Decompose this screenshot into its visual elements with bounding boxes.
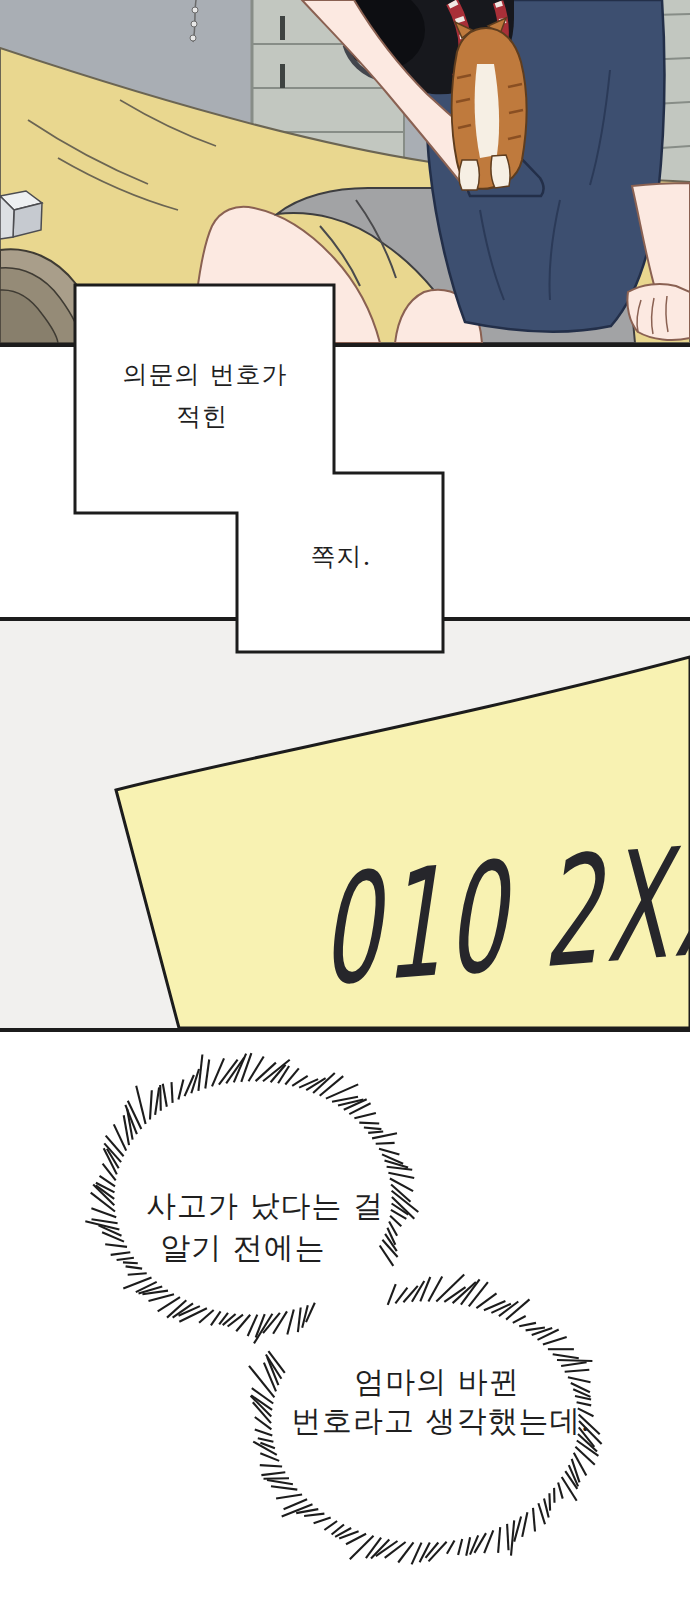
white-box [0, 191, 42, 239]
narration-line-1: 의문의 번호가 [123, 358, 288, 391]
phone-number-handwriting: 010 2XX [318, 822, 690, 1007]
thought-line-4: 번호라고 생각했는데. [291, 1401, 591, 1442]
thought-bubble-outline [85, 1053, 601, 1564]
webtoon-page: 010 2XX 의문의 번호가 적힌 쪽지. 사고가 났다는 걸 알기 전에는 … [0, 0, 690, 1600]
narration-line-2: 적힌 [176, 400, 228, 433]
illustration-panel [0, 0, 690, 343]
bedroom-illustration [0, 0, 690, 343]
thought-line-2: 알기 전에는 [160, 1228, 326, 1269]
panel-border-bottom [0, 1028, 690, 1032]
thought-line-3: 엄마의 바뀐 [354, 1362, 520, 1403]
thought-line-1: 사고가 났다는 걸 [146, 1186, 384, 1227]
panel-border-top [0, 343, 690, 347]
note-panel: 010 2XX [0, 621, 690, 1028]
narration-line-3: 쪽지. [311, 540, 372, 573]
